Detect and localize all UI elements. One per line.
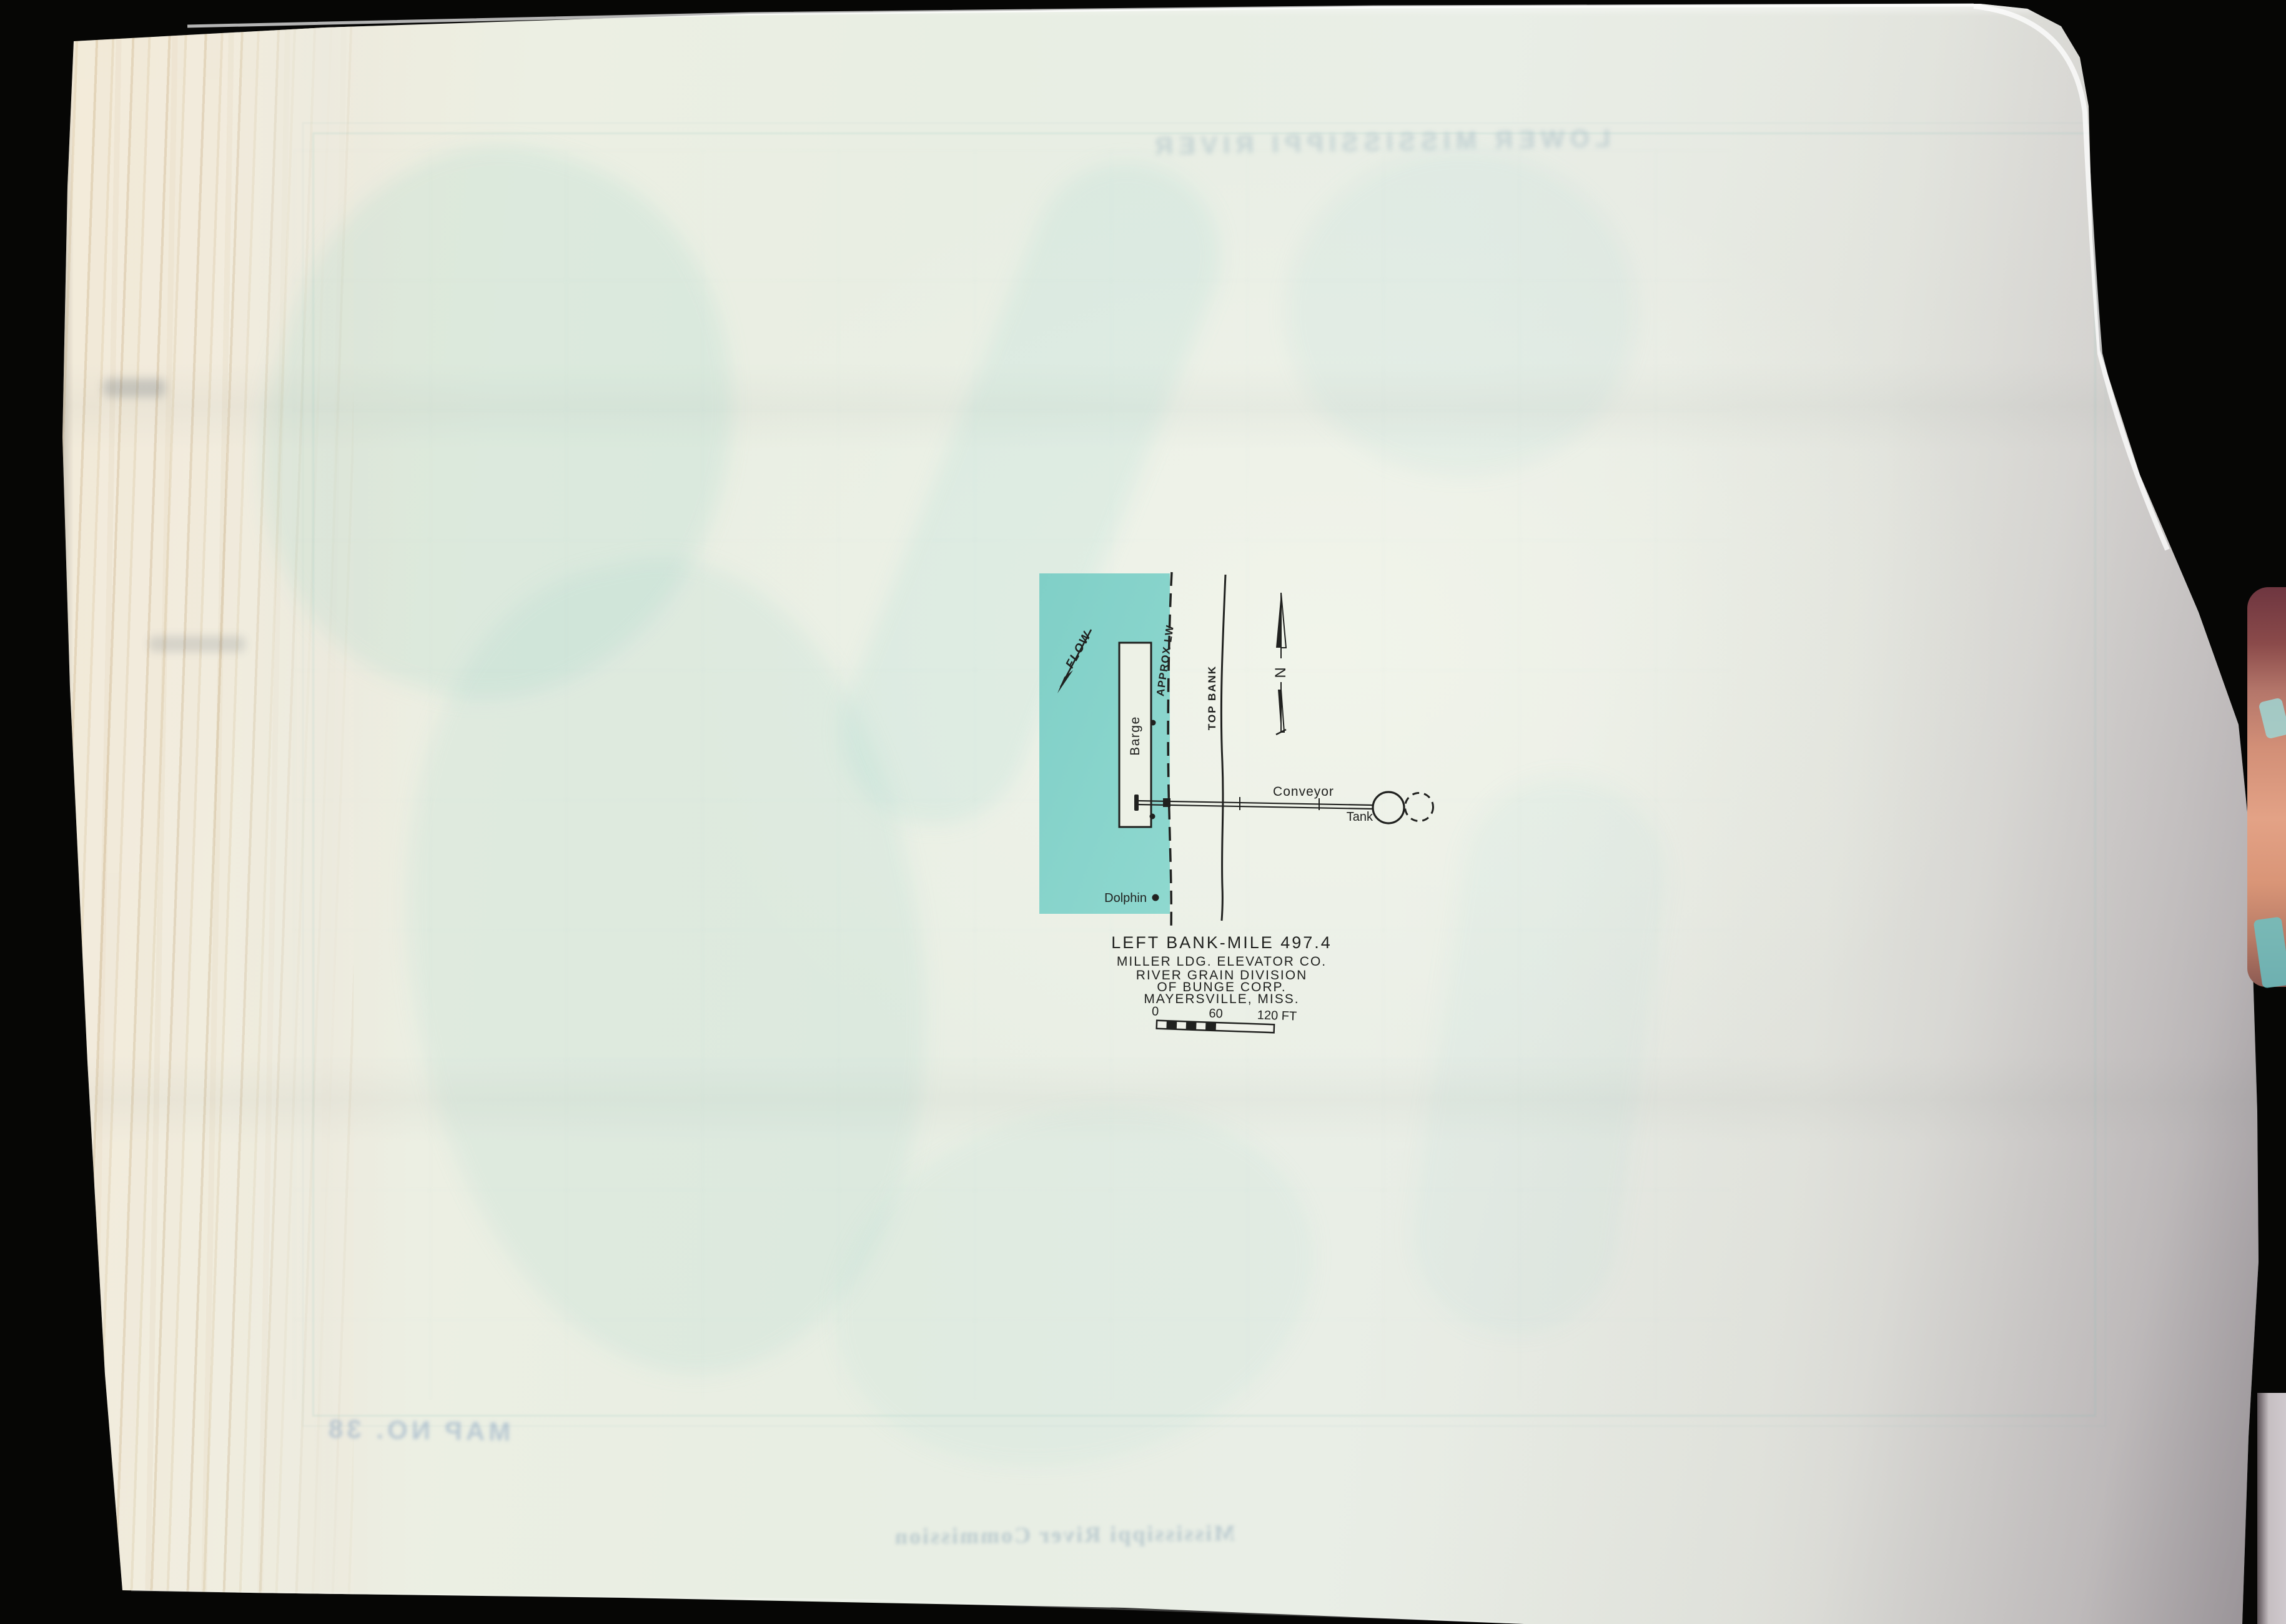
top-bank-label: TOP BANK: [1206, 665, 1218, 730]
dolphin-label: Dolphin: [1104, 891, 1147, 905]
conveyor-support: [1163, 798, 1170, 807]
scale-bar: 0 60 120 FT: [1151, 1004, 1297, 1033]
conveyor-label: Conveyor: [1273, 785, 1334, 799]
barge-label: Barge: [1128, 716, 1142, 756]
conveyor-end-cap: [1134, 795, 1139, 811]
facility-diagram: APPROX LW TOP BANK FLOW Barge Conveyor: [1024, 550, 1462, 1074]
mooring-dot: [1150, 720, 1156, 726]
scale-tick-120: 120 FT: [1257, 1008, 1297, 1023]
atlas-page: LOWER MISSISSIPPI RIVER MAP NO. 38 Missi…: [0, 0, 2286, 1624]
scale-tick-0: 0: [1152, 1004, 1159, 1018]
dolphin-dot: [1152, 894, 1159, 901]
photo-of-atlas-page: LOWER MISSISSIPPI RIVER MAP NO. 38 Missi…: [0, 0, 2286, 1624]
tank-label: Tank: [1347, 810, 1373, 824]
diagram-subtitle-1: MILLER LDG. ELEVATOR CO.: [1117, 954, 1327, 969]
tank-circle-dashed: [1405, 793, 1433, 821]
ghost-mirrored-caption: Mississippi River Commission: [893, 1520, 1235, 1550]
diagram-title: LEFT BANK-MILE 497.4: [1111, 933, 1332, 952]
tank-circle: [1373, 792, 1404, 823]
ghost-map-grid: [294, 150, 1730, 1399]
diagram-subtitle-4: MAYERSVILLE, MISS.: [1144, 992, 1299, 1006]
scale-tick-60: 60: [1209, 1007, 1223, 1021]
top-bank-line: [1221, 575, 1225, 921]
north-arrow: N: [1272, 593, 1289, 735]
next-page-edge: [2257, 1393, 2286, 1624]
mooring-dot: [1150, 814, 1155, 819]
ghost-mirrored-map-number: MAP NO. 38: [325, 1414, 511, 1447]
north-label: N: [1272, 667, 1289, 678]
